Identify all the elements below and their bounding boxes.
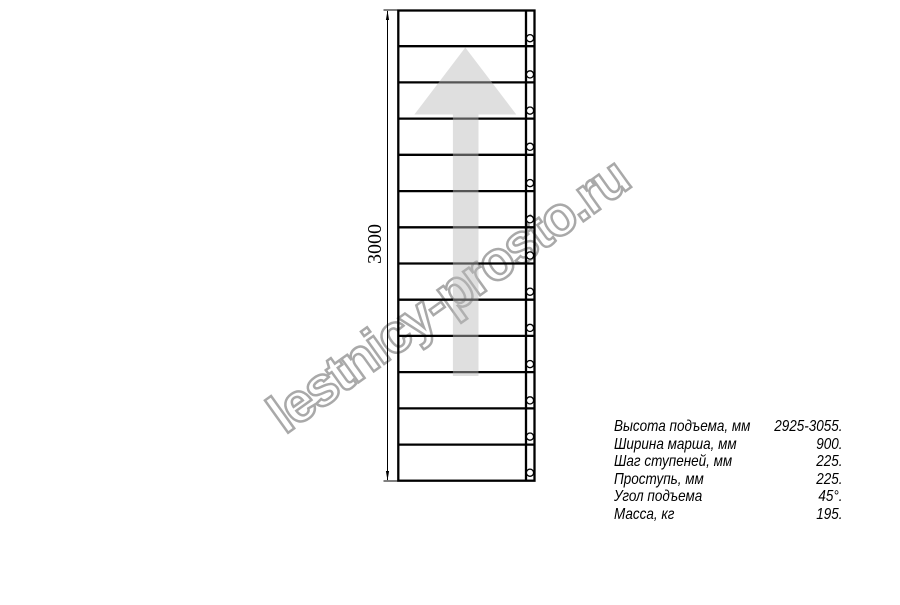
svg-text:3000: 3000 [364,224,386,264]
